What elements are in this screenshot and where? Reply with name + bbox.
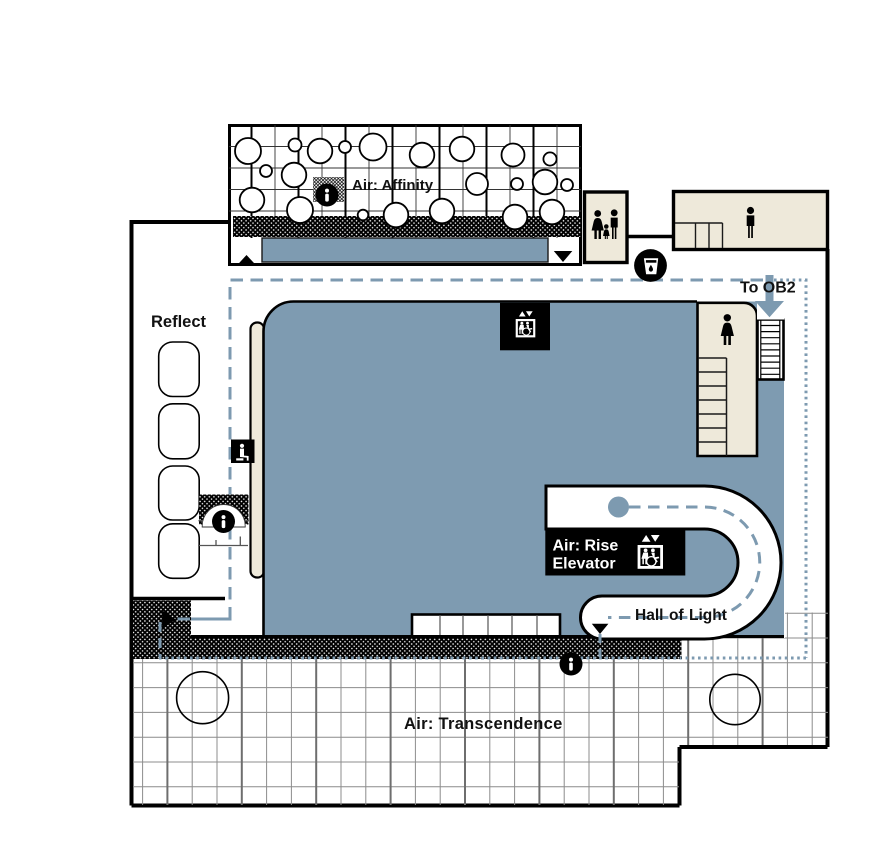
- svg-text:Air: Rise: Air: Rise: [553, 538, 619, 555]
- svg-text:Air: Transcendence: Air: Transcendence: [404, 715, 563, 733]
- svg-text:Elevator: Elevator: [553, 556, 616, 573]
- svg-text:Reflect: Reflect: [151, 313, 207, 331]
- svg-text:To OB2: To OB2: [740, 280, 796, 297]
- svg-text:Light: Light: [689, 607, 727, 624]
- svg-text:Hall: Hall: [635, 607, 663, 624]
- svg-text:of: of: [669, 607, 684, 624]
- svg-text:Air: Affinity: Air: Affinity: [352, 177, 434, 194]
